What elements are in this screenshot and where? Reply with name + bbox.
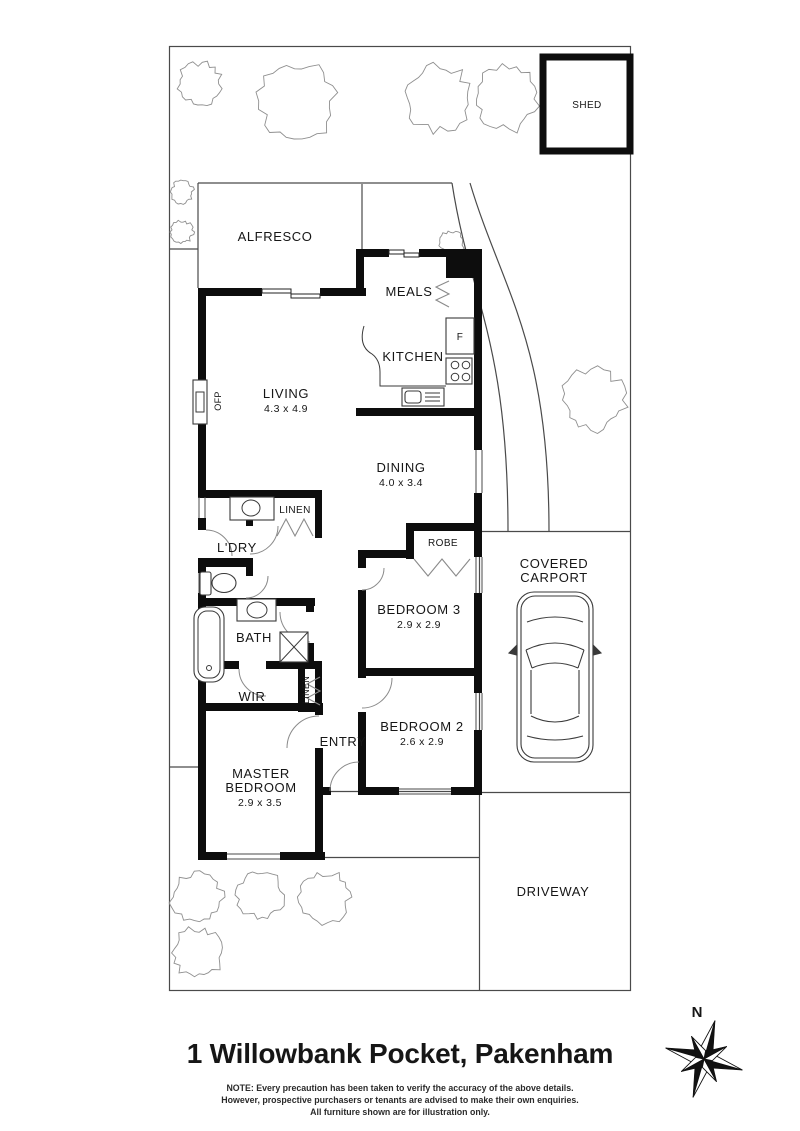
tree (169, 871, 225, 922)
wir-label: WIR (238, 689, 265, 704)
dining-label: DINING (376, 460, 425, 475)
floor-plan-canvas: SHED (0, 0, 800, 1131)
tree (297, 873, 352, 926)
caption-block: 1 Willowbank Pocket, Pakenham NOTE: Ever… (187, 1038, 614, 1117)
tree (235, 872, 285, 919)
linen-upper-label: LINEN (279, 505, 310, 516)
tree (256, 65, 338, 139)
disclaimer-line-3: All furniture shown are for illustration… (310, 1107, 490, 1117)
master-dims: 2.9 x 3.5 (238, 797, 282, 809)
car-illustration (509, 592, 601, 762)
fireplace: OFP (193, 380, 223, 424)
compass-star (655, 1010, 754, 1109)
linen-lower-label: LINEN (301, 676, 311, 704)
master-label-line2: BEDROOM (225, 780, 296, 795)
bedroom3-dims: 2.9 x 2.9 (397, 619, 441, 631)
shed: SHED (543, 57, 630, 151)
shed-label: SHED (572, 100, 601, 111)
page-title: 1 Willowbank Pocket, Pakenham (187, 1038, 614, 1069)
bedroom3-label: BEDROOM 3 (377, 602, 460, 617)
bath-label: BATH (236, 630, 272, 645)
tree (177, 61, 222, 105)
yard-lines (198, 183, 630, 990)
carport-label-line2: CARPORT (520, 570, 588, 585)
carport-label-line1: COVERED (520, 556, 589, 571)
driveway-label: DRIVEWAY (517, 884, 590, 899)
disclaimer-line-1: NOTE: Every precaution has been taken to… (226, 1083, 573, 1093)
tree (405, 62, 470, 134)
tree (170, 180, 194, 204)
fridge-label: F (457, 332, 464, 343)
robe-label: ROBE (428, 538, 458, 549)
master-label-line1: MASTER (232, 766, 290, 781)
disclaimer-line-2: However, prospective purchasers or tenan… (221, 1095, 578, 1105)
tree (562, 366, 628, 434)
bedroom2-label: BEDROOM 2 (380, 719, 463, 734)
north-label: N (692, 1004, 703, 1021)
alfresco-label: ALFRESCO (238, 229, 313, 244)
floorplan-page: SHED (0, 0, 800, 1131)
ofp-label: OFP (213, 391, 223, 410)
compass-rose: N (655, 1004, 754, 1108)
tree (477, 64, 540, 133)
kitchen-label: KITCHEN (382, 349, 443, 364)
bedroom2-dims: 2.6 x 2.9 (400, 736, 444, 748)
dining-dims: 4.0 x 3.4 (379, 477, 423, 489)
living-dims: 4.3 x 4.9 (264, 403, 308, 415)
tree (170, 220, 195, 243)
entry-label: ENTRY (320, 734, 367, 749)
tree (172, 927, 223, 977)
room-labels: ALFRESCO MEALS KITCHEN F LIVING 4.3 x 4.… (217, 229, 589, 899)
living-label: LIVING (263, 386, 309, 401)
laundry-label: L'DRY (217, 540, 257, 555)
meals-label: MEALS (385, 284, 432, 299)
